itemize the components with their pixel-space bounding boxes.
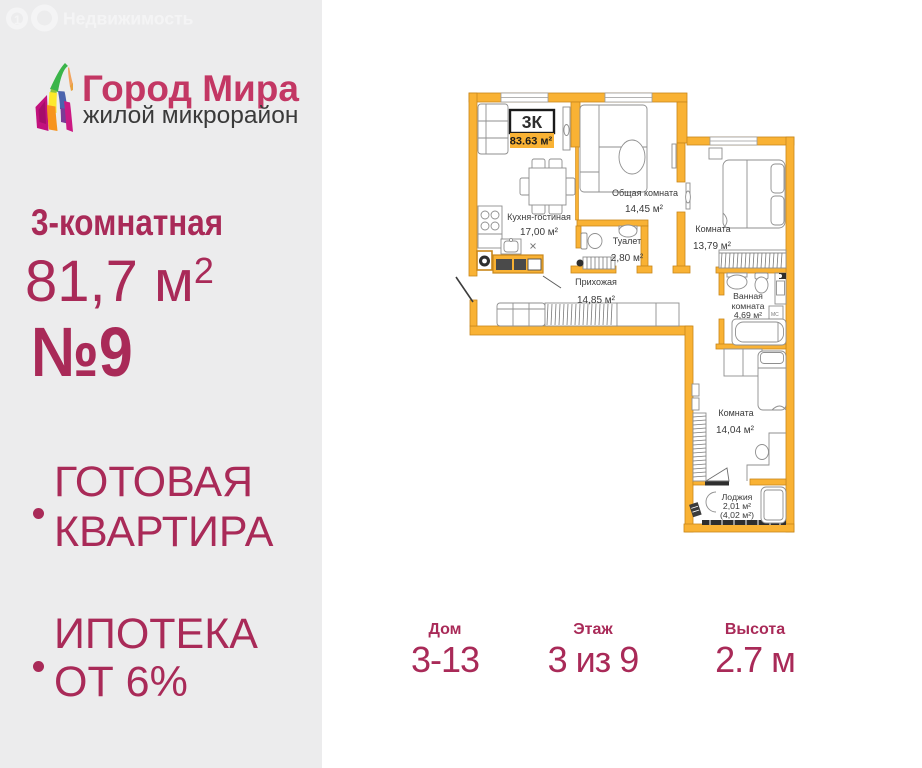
svg-text:Комната: Комната [718, 408, 753, 418]
svg-text:4,69 м²: 4,69 м² [734, 310, 762, 320]
svg-text:83.63 м²: 83.63 м² [510, 136, 553, 148]
svg-text:14,04 м²: 14,04 м² [716, 425, 755, 436]
svg-text:13,79 м²: 13,79 м² [693, 241, 732, 252]
svg-text:Кухня-гостиная: Кухня-гостиная [507, 212, 571, 222]
svg-text:17,00 м²: 17,00 м² [520, 227, 559, 238]
svg-text:2,80 м²: 2,80 м² [611, 253, 644, 264]
svg-text:(4,02 м²): (4,02 м²) [720, 510, 754, 520]
svg-text:14,45 м²: 14,45 м² [625, 204, 664, 215]
svg-text:Ванная: Ванная [733, 291, 763, 301]
svg-text:3К: 3К [522, 112, 543, 132]
svg-text:Комната: Комната [695, 224, 730, 234]
svg-text:1: 1 [14, 13, 21, 27]
svg-text:Общая комната: Общая комната [612, 188, 678, 198]
svg-text:Туалет: Туалет [613, 236, 641, 246]
svg-text:Прихожая: Прихожая [575, 277, 617, 287]
svg-text:МС: МС [771, 312, 779, 318]
svg-text:Недвижимость: Недвижимость [63, 9, 194, 29]
svg-text:14,85 м²: 14,85 м² [577, 295, 616, 306]
